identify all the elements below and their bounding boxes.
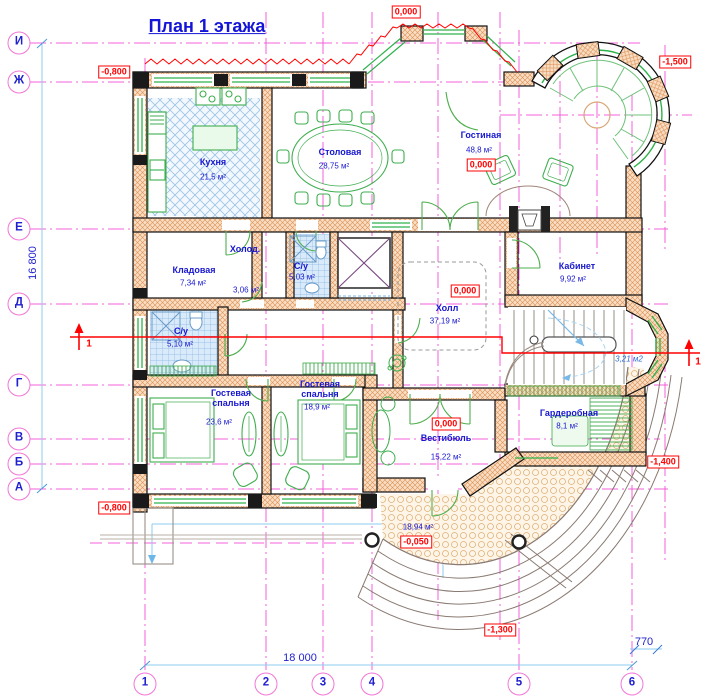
tower-veranda <box>532 42 671 176</box>
dim-right-offset: 770 <box>635 636 653 648</box>
room-label-living: Гостиная <box>461 131 502 141</box>
stairs <box>505 307 626 388</box>
room-area-guest-bedroom-1: 23,6 м² <box>206 419 232 428</box>
axis-col-2: 2 <box>255 673 278 696</box>
axis-row-b: Б <box>8 453 31 476</box>
axis-row-d: Д <box>8 293 31 316</box>
room-area-office: 9,92 м² <box>560 276 586 285</box>
axis-col-6: 6 <box>621 673 644 696</box>
room-label-dining: Столовая <box>319 148 362 158</box>
elevation-mark-vestibule: 0,000 <box>432 418 461 431</box>
room-label-storage: Кладовая <box>172 266 215 276</box>
axis-row-zh: Ж <box>8 71 31 94</box>
room-label-office: Кабинет <box>559 262 595 272</box>
room-label-wc1: С/у <box>294 262 308 272</box>
elevation-mark-terrace: -0,050 <box>400 536 432 549</box>
axis-col-1: 1 <box>134 673 157 696</box>
room-area-storage: 7,34 м² <box>180 280 206 289</box>
room-area-cold: 3,06 м² <box>233 287 259 296</box>
elevation-mark-living: 0,000 <box>467 159 496 172</box>
floor-plan-canvas: План 1 этажа И Ж Е Д Г В Б А 1 2 3 4 5 6… <box>0 0 706 700</box>
room-area-guest-bedroom-2: 18,9 м² <box>304 404 330 413</box>
elevation-mark-hall: 0,000 <box>451 285 480 298</box>
room-label-kitchen: Кухня <box>200 158 226 168</box>
room-label-wardrobe: Гардеробная <box>540 409 598 419</box>
floorplan-drawing <box>0 0 706 700</box>
elevation-mark-bottom-left: -0,800 <box>98 502 130 515</box>
axis-row-v: В <box>8 428 31 451</box>
elevation-mark-top-left: -0,800 <box>98 66 130 79</box>
room-area-wc2: 5,10 м² <box>167 341 193 350</box>
room-area-living: 48,8 м² <box>466 147 492 156</box>
dining-table <box>277 110 404 206</box>
elevation-mark-steps: -1,300 <box>484 624 516 637</box>
elevation-mark-porch: 0,000 <box>392 6 421 19</box>
axis-row-e: Е <box>8 218 31 241</box>
section-mark-right: 1 <box>695 357 701 368</box>
axis-col-5: 5 <box>508 673 531 696</box>
room-area-kitchen: 21,5 м² <box>200 174 226 183</box>
room-label-guest-bedroom-1: Гостевая спальня <box>203 389 259 409</box>
axis-row-i: И <box>8 32 31 55</box>
room-area-hall: 37,19 м² <box>430 318 460 327</box>
dim-total-width: 18 000 <box>283 652 317 664</box>
page-title: План 1 этажа <box>149 17 266 37</box>
axis-col-3: 3 <box>312 673 335 696</box>
room-area-stairs: 3,21 м2 <box>615 356 643 365</box>
elevator <box>338 238 390 300</box>
room-label-hall: Холл <box>436 304 459 314</box>
room-label-cold: Холод. <box>230 245 260 255</box>
elevation-mark-tower: -1,500 <box>659 56 691 69</box>
room-label-guest-bedroom-2: Гостевая спальня <box>292 380 348 400</box>
room-label-wc2: С/у <box>174 327 188 337</box>
elevation-mark-right: -1,400 <box>647 456 679 469</box>
room-area-terrace: 18,94 м² <box>403 524 433 533</box>
section-mark-left: 1 <box>86 339 92 350</box>
room-label-vestibule: Вестибюль <box>421 434 472 444</box>
axis-row-g: Г <box>8 374 31 397</box>
axis-col-4: 4 <box>361 673 384 696</box>
room-area-wc1: 5,03 м² <box>289 274 315 283</box>
room-area-wardrobe: 8,1 м² <box>556 423 578 432</box>
room-area-dining: 28,75 м² <box>319 163 349 172</box>
dim-total-height: 16 800 <box>27 246 39 280</box>
axis-row-a: А <box>8 478 31 501</box>
room-area-vestibule: 15,22 м² <box>431 454 461 463</box>
